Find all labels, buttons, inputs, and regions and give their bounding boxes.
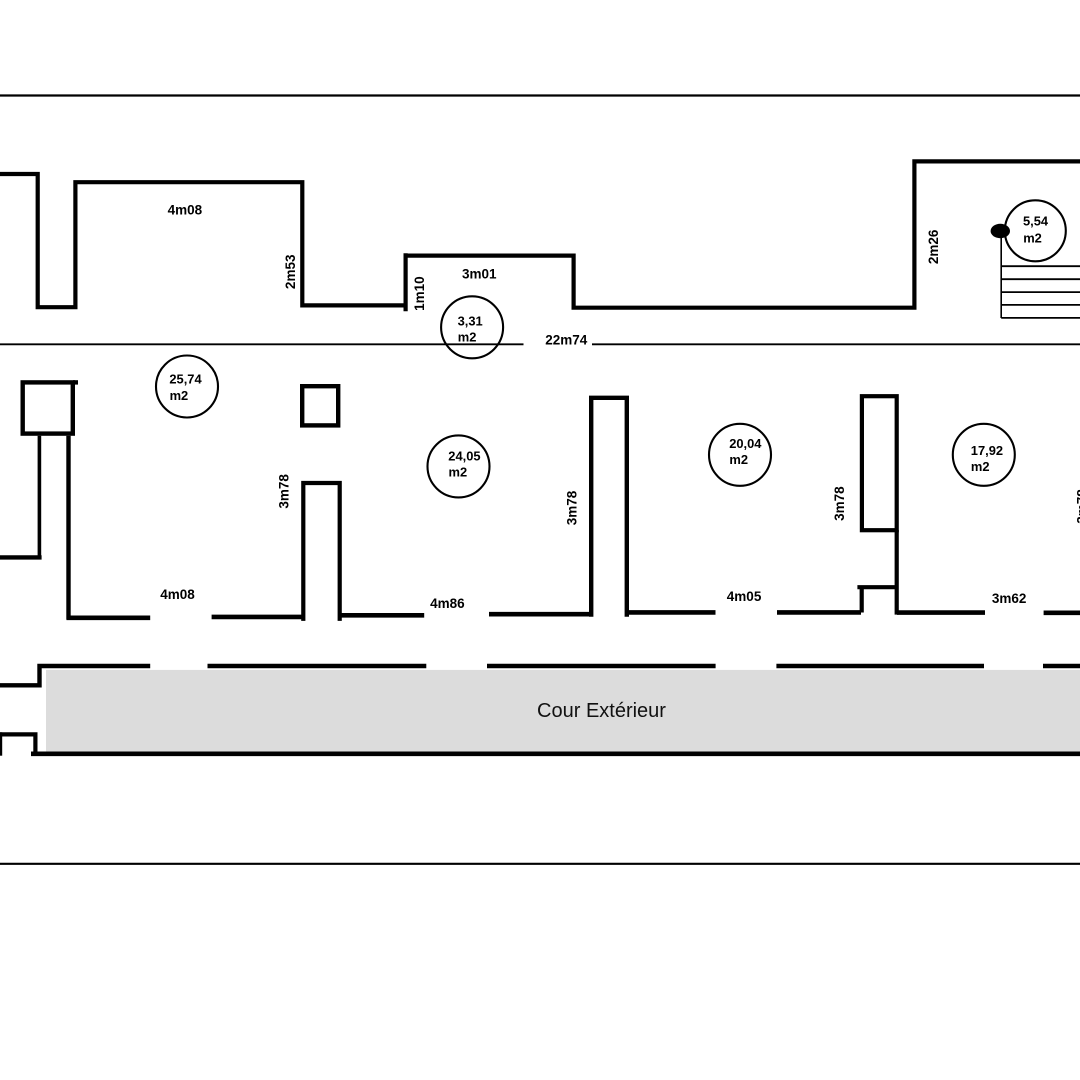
svg-text:m2: m2 [1023,230,1042,245]
svg-text:22m74: 22m74 [545,333,588,348]
svg-text:4m05: 4m05 [727,589,762,604]
svg-text:m2: m2 [449,464,468,479]
svg-text:3m01: 3m01 [462,266,497,281]
svg-text:Cour Extérieur: Cour Extérieur [537,700,666,722]
svg-text:m2: m2 [458,330,477,345]
svg-text:m2: m2 [971,459,990,474]
svg-text:1m10: 1m10 [412,276,427,311]
svg-text:4m08: 4m08 [168,202,203,217]
svg-text:25,74: 25,74 [169,372,202,387]
svg-text:m2: m2 [729,452,748,467]
svg-text:4m86: 4m86 [430,596,465,611]
svg-text:4m08: 4m08 [160,587,195,602]
svg-text:20,04: 20,04 [729,436,762,451]
svg-text:3m78: 3m78 [832,486,847,521]
svg-text:3m78: 3m78 [565,490,580,525]
svg-text:5,54: 5,54 [1023,214,1049,229]
svg-text:2m26: 2m26 [926,229,941,264]
svg-text:3m78: 3m78 [1075,489,1080,524]
svg-text:24,05: 24,05 [448,448,480,463]
svg-text:3m78: 3m78 [277,474,292,509]
svg-text:3m62: 3m62 [992,591,1027,606]
svg-text:m2: m2 [170,388,189,403]
svg-text:17,92: 17,92 [971,443,1003,458]
svg-text:3,31: 3,31 [458,313,483,328]
svg-text:2m53: 2m53 [283,254,298,289]
